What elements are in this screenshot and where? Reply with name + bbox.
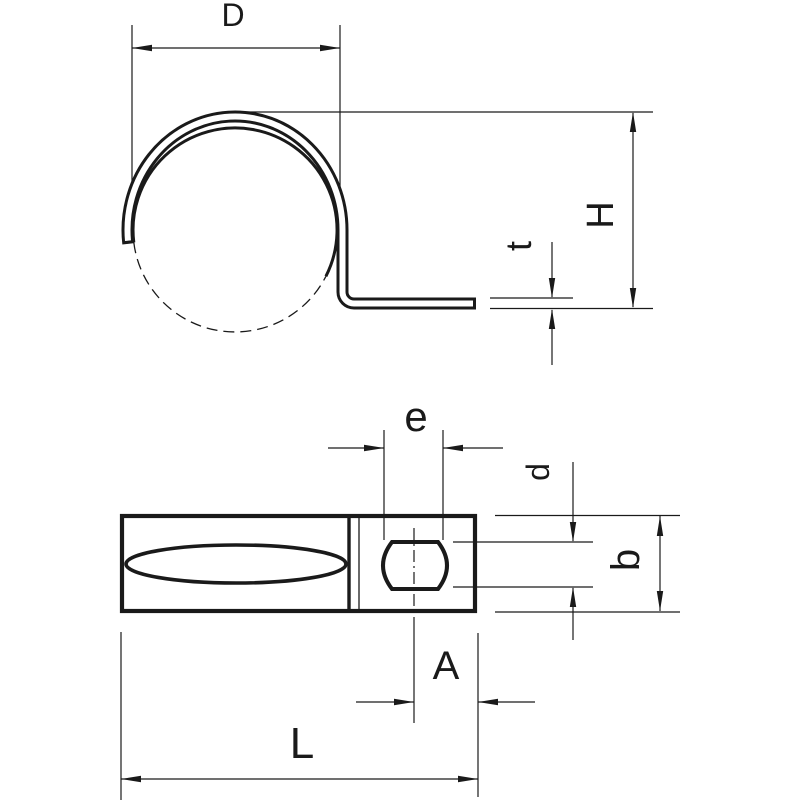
- fastening-hole: [383, 542, 447, 589]
- arrowhead: [570, 522, 576, 542]
- dimension-label-b: b: [606, 549, 646, 571]
- dimension-label-D: D: [221, 0, 244, 31]
- arrowhead: [121, 776, 141, 782]
- dimension-label-L: L: [290, 722, 314, 766]
- arrowhead: [364, 445, 384, 451]
- arrowhead: [570, 587, 576, 607]
- arrowhead: [394, 699, 414, 705]
- technical-drawing: D H t e d b A L: [0, 0, 800, 800]
- arrowhead: [630, 112, 636, 132]
- arrowhead: [549, 309, 555, 329]
- arrowhead: [132, 45, 152, 51]
- arrowhead: [549, 278, 555, 298]
- dimension-label-d: d: [522, 463, 554, 481]
- dimension-label-e: e: [404, 396, 427, 438]
- dimension-label-t: t: [501, 241, 537, 251]
- dimension-label-H: H: [582, 201, 620, 228]
- side-view: [128, 25, 654, 365]
- arrowhead: [657, 591, 663, 611]
- loop-projection-ellipse: [126, 545, 346, 583]
- plan-view: [121, 430, 680, 800]
- arrowhead: [657, 516, 663, 536]
- arrowhead: [478, 699, 498, 705]
- dimension-label-A: A: [433, 646, 460, 686]
- arrowhead: [630, 288, 636, 308]
- cable-circle-dashed: [134, 242, 326, 332]
- drawing-geometry: [0, 0, 800, 800]
- arrowhead: [458, 776, 478, 782]
- clip-body-outline: [122, 516, 475, 611]
- arrowhead: [320, 45, 340, 51]
- arrowhead: [443, 445, 463, 451]
